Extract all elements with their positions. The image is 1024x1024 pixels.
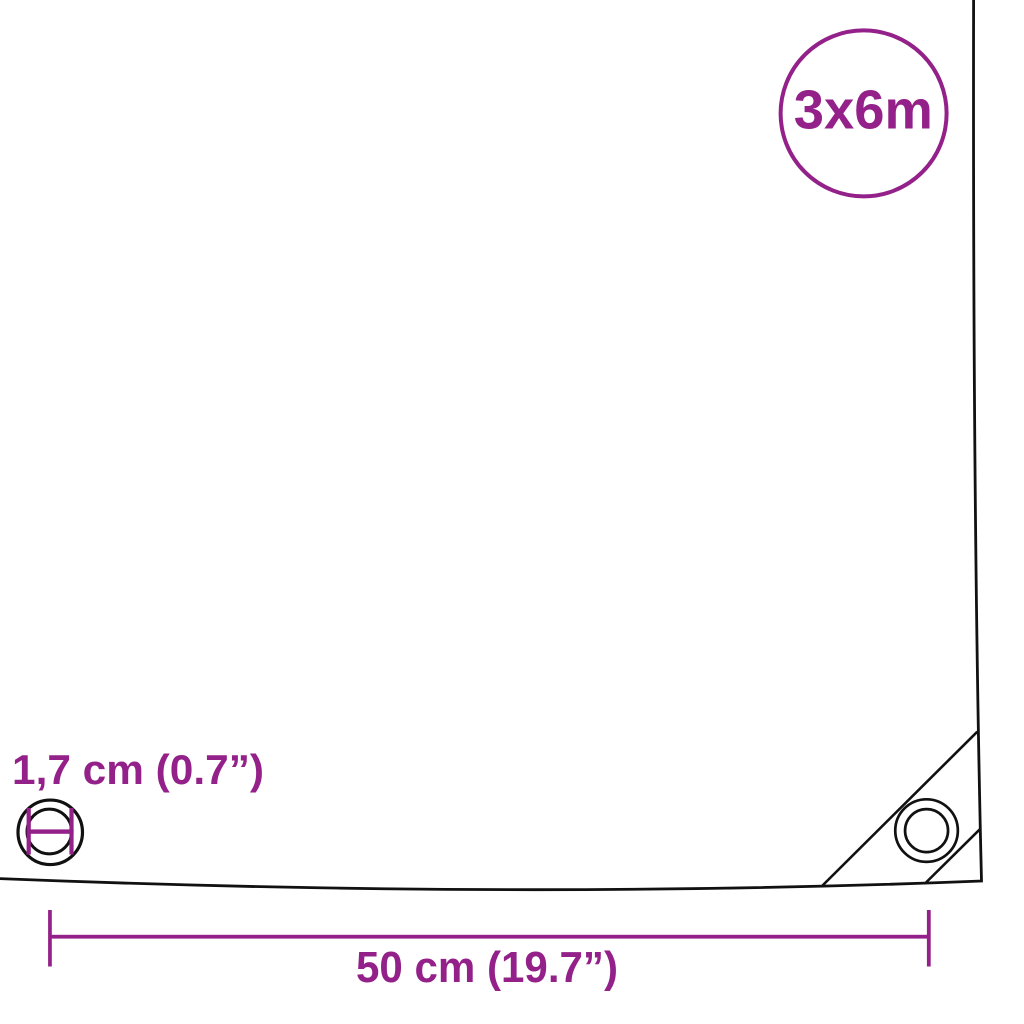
svg-text:3x6m: 3x6m — [794, 79, 933, 141]
svg-text:50 cm (19.7”): 50 cm (19.7”) — [356, 943, 618, 992]
svg-text:1,7 cm (0.7”): 1,7 cm (0.7”) — [12, 746, 264, 793]
